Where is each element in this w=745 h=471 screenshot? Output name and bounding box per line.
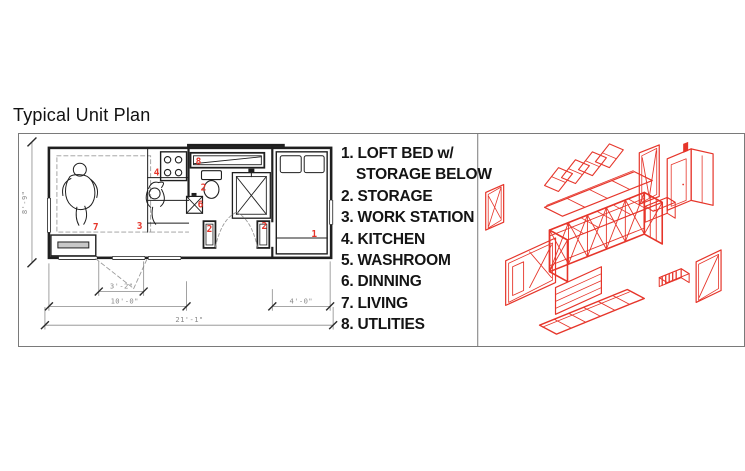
person-living — [63, 163, 98, 225]
legend-num: 7. — [341, 293, 354, 314]
legend-label: STORAGE — [358, 188, 433, 205]
axon-siding-strip — [556, 267, 602, 315]
room-number-labels: 7 3 4 8 2 6 2 2 1 — [93, 157, 317, 240]
legend-num: 3. — [341, 207, 354, 228]
legend-label-wrap: STORAGE BELOW — [341, 164, 493, 185]
legend-label: WORK STATION — [358, 209, 475, 226]
label-dinning: 6 — [198, 199, 204, 210]
dim-height: 8'-9" — [20, 191, 29, 214]
utilities-closet — [191, 153, 265, 168]
legend-item-7: 7.LIVING — [341, 293, 493, 314]
kitchen-cooktop — [161, 152, 187, 181]
label-utilities: 8 — [196, 157, 202, 168]
legend-num: 4. — [341, 229, 354, 250]
label-loft-bed: 1 — [311, 229, 317, 240]
axon-right-wall-panel — [696, 250, 721, 303]
legend-item-2: 2.STORAGE — [341, 186, 493, 207]
drawing-frame: 7 3 4 8 2 6 2 2 1 — [18, 133, 745, 347]
legend-item-8: 8.UTLITIES — [341, 314, 493, 335]
page-title: Typical Unit Plan — [13, 105, 150, 126]
bench — [51, 235, 96, 256]
legend-num: 8. — [341, 314, 354, 335]
label-storage-toilet: 2 — [201, 182, 207, 193]
dim-bed-span: 4'-0" — [289, 296, 313, 305]
label-living: 7 — [93, 222, 99, 233]
windows — [46, 198, 334, 260]
legend-label: KITCHEN — [358, 231, 426, 248]
legend: 1.LOFT BED w/ STORAGE BELOW 2.STORAGE 3.… — [341, 143, 493, 336]
legend-item-1: 1.LOFT BED w/ STORAGE BELOW — [341, 143, 493, 186]
legend-label: UTLITIES — [358, 316, 425, 333]
legend-num: 6. — [341, 271, 354, 292]
work-station-shelves — [148, 148, 189, 232]
label-storage-right: 2 — [261, 221, 267, 232]
label-storage-left: 2 — [207, 224, 213, 235]
legend-num: 5. — [341, 250, 354, 271]
dim-total-span: 21'-1" — [175, 315, 203, 324]
exploded-axonometric — [486, 142, 721, 334]
axon-roof-hatch-panels — [545, 144, 624, 192]
dim-entry: 3'-2" — [110, 282, 134, 291]
legend-num: 2. — [341, 186, 354, 207]
door-swings — [215, 212, 257, 247]
dim-main-span: 10'-0" — [111, 296, 139, 305]
person-work-station — [146, 182, 164, 224]
legend-label: LIVING — [358, 295, 408, 312]
legend-item-6: 6.DINNING — [341, 271, 493, 292]
axon-step-module — [659, 269, 689, 287]
legend-item-5: 5.WASHROOM — [341, 250, 493, 271]
legend-num: 1. — [341, 143, 354, 164]
legend-label: LOFT BED w/ — [358, 145, 454, 162]
page: { "title": "Typical Unit Plan", "colors"… — [0, 0, 745, 471]
label-work-station: 3 — [137, 221, 143, 232]
legend-item-4: 4.KITCHEN — [341, 229, 493, 250]
floor-plan: 7 3 4 8 2 6 2 2 1 — [20, 138, 337, 329]
bed — [276, 152, 327, 254]
legend-item-3: 3.WORK STATION — [341, 207, 493, 228]
axon-roof-deck — [545, 171, 653, 217]
label-kitchen: 4 — [154, 168, 160, 179]
legend-label: DINNING — [358, 273, 422, 290]
storage-pillars — [203, 221, 269, 248]
legend-label: WASHROOM — [358, 252, 451, 269]
axon-door-module — [667, 142, 713, 210]
axon-window-wall-panel — [506, 238, 556, 305]
shower — [232, 169, 270, 219]
